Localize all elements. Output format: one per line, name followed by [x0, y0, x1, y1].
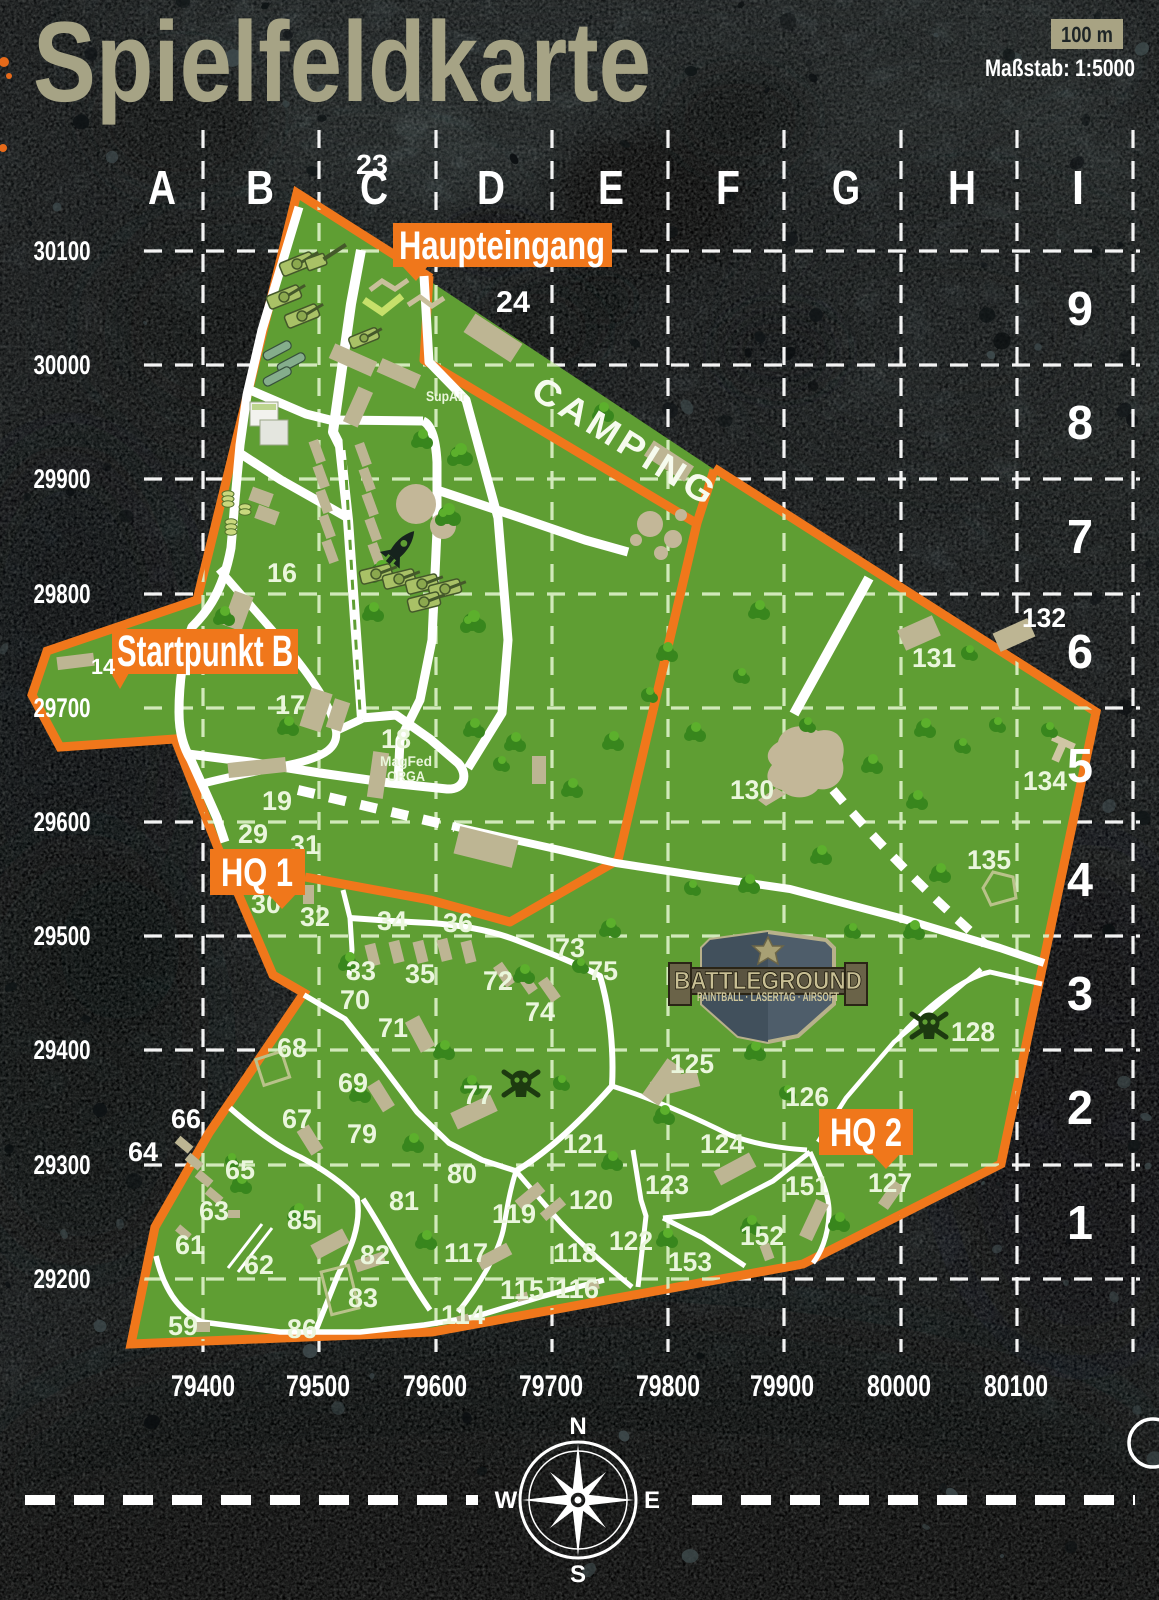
svg-text:61: 61 [175, 1230, 205, 1260]
svg-text:79600: 79600 [403, 1370, 467, 1403]
svg-text:69: 69 [338, 1068, 368, 1098]
svg-text:1: 1 [1067, 1197, 1093, 1250]
svg-text:W: W [495, 1487, 518, 1514]
svg-text:36: 36 [443, 908, 473, 938]
svg-text:114: 114 [441, 1300, 485, 1330]
svg-text:C: C [360, 162, 388, 215]
svg-text:68: 68 [277, 1033, 307, 1063]
svg-text:18: 18 [381, 724, 411, 754]
svg-text:83: 83 [348, 1283, 378, 1313]
svg-text:80000: 80000 [867, 1370, 931, 1403]
svg-text:29800: 29800 [34, 579, 91, 609]
svg-text:SupAir: SupAir [426, 388, 466, 404]
svg-text:77: 77 [463, 1080, 493, 1110]
svg-text:79400: 79400 [171, 1370, 235, 1403]
svg-text:132: 132 [1022, 603, 1066, 633]
svg-text:Spielfeldkarte: Spielfeldkarte [33, 0, 651, 126]
svg-text:29600: 29600 [34, 807, 91, 837]
svg-text:Startpunkt B: Startpunkt B [117, 627, 293, 676]
svg-text:2: 2 [1067, 1082, 1093, 1135]
svg-text:5: 5 [1067, 740, 1093, 793]
svg-text:F: F [716, 162, 740, 215]
svg-text:134: 134 [1023, 766, 1067, 796]
svg-text:H: H [948, 162, 976, 215]
svg-text:B: B [246, 162, 274, 215]
svg-text:73: 73 [555, 933, 585, 963]
svg-text:N: N [569, 1413, 586, 1440]
svg-text:A: A [148, 162, 176, 215]
svg-text:I: I [1072, 162, 1084, 215]
svg-text:29400: 29400 [34, 1035, 91, 1065]
svg-text:19: 19 [262, 786, 292, 816]
svg-text:151: 151 [785, 1171, 829, 1201]
svg-text:115: 115 [500, 1275, 544, 1305]
svg-text:153: 153 [668, 1247, 712, 1277]
svg-text:121: 121 [563, 1129, 607, 1159]
svg-text:30000: 30000 [34, 350, 91, 380]
svg-text:152: 152 [740, 1221, 784, 1251]
svg-text:8: 8 [1067, 397, 1093, 450]
svg-text:79700: 79700 [519, 1370, 583, 1403]
svg-text:29900: 29900 [34, 464, 91, 494]
svg-text:80100: 80100 [984, 1370, 1048, 1403]
svg-text:119: 119 [492, 1199, 536, 1229]
svg-text:135: 135 [967, 845, 1011, 875]
svg-text:62: 62 [244, 1250, 274, 1280]
svg-text:33: 33 [346, 956, 376, 986]
svg-text:7: 7 [1067, 511, 1093, 564]
svg-text:Haupteingang: Haupteingang [399, 224, 605, 268]
svg-text:122: 122 [609, 1226, 653, 1256]
svg-text:64: 64 [128, 1137, 158, 1167]
svg-text:D: D [477, 162, 505, 215]
svg-text:6: 6 [1067, 626, 1093, 679]
svg-text:82: 82 [360, 1240, 390, 1270]
svg-text:128: 128 [951, 1017, 995, 1047]
svg-text:PAINTBALL · LASERTAG · AIRSOFT: PAINTBALL · LASERTAG · AIRSOFT [697, 990, 839, 1004]
svg-text:71: 71 [378, 1013, 408, 1043]
svg-text:81: 81 [389, 1186, 419, 1216]
svg-text:79800: 79800 [636, 1370, 700, 1403]
svg-text:124: 124 [700, 1129, 744, 1159]
svg-text:85: 85 [287, 1205, 317, 1235]
svg-text:24: 24 [496, 286, 530, 319]
svg-text:35: 35 [405, 959, 435, 989]
svg-text:S: S [570, 1561, 586, 1588]
svg-text:29300: 29300 [34, 1150, 91, 1180]
svg-text:29700: 29700 [34, 693, 91, 723]
svg-text:65: 65 [225, 1155, 255, 1185]
svg-text:17: 17 [275, 690, 305, 720]
svg-text:32: 32 [300, 902, 330, 932]
svg-text:70: 70 [340, 985, 370, 1015]
svg-text:131: 131 [912, 643, 956, 673]
svg-text:130: 130 [730, 775, 774, 805]
svg-text:4: 4 [1067, 854, 1093, 907]
svg-text:79: 79 [347, 1119, 377, 1149]
svg-text:34: 34 [377, 906, 407, 936]
svg-text:14: 14 [91, 654, 116, 679]
svg-text:29500: 29500 [34, 921, 91, 951]
svg-text:86: 86 [287, 1314, 317, 1344]
svg-text:116: 116 [555, 1274, 599, 1304]
svg-text:75: 75 [588, 956, 618, 986]
svg-text:118: 118 [553, 1238, 597, 1268]
svg-text:16: 16 [267, 558, 297, 588]
svg-text:E: E [644, 1487, 660, 1514]
svg-text:G: G [832, 162, 860, 215]
svg-text:67: 67 [282, 1104, 312, 1134]
svg-text:MagFed: MagFed [380, 753, 432, 769]
svg-text:100 m: 100 m [1061, 22, 1113, 47]
svg-text:79500: 79500 [286, 1370, 350, 1403]
svg-text:72: 72 [483, 966, 513, 996]
svg-text:HQ 1: HQ 1 [221, 851, 293, 895]
svg-text:123: 123 [645, 1170, 689, 1200]
svg-text:74: 74 [525, 997, 555, 1027]
svg-text:80: 80 [447, 1159, 477, 1189]
svg-text:66: 66 [171, 1104, 201, 1134]
svg-text:29200: 29200 [34, 1264, 91, 1294]
svg-text:ORGA: ORGA [387, 768, 425, 784]
svg-text:127: 127 [868, 1168, 912, 1198]
svg-text:E: E [598, 162, 624, 215]
svg-text:79900: 79900 [750, 1370, 814, 1403]
svg-text:120: 120 [569, 1185, 613, 1215]
svg-text:HQ 2: HQ 2 [830, 1111, 902, 1155]
svg-text:29: 29 [238, 819, 268, 849]
svg-text:126: 126 [785, 1082, 829, 1112]
svg-text:125: 125 [670, 1049, 714, 1079]
svg-text:117: 117 [444, 1238, 488, 1268]
svg-text:3: 3 [1067, 968, 1093, 1021]
svg-text:30100: 30100 [34, 236, 91, 266]
svg-text:59: 59 [168, 1311, 198, 1341]
svg-text:Maßstab: 1:5000: Maßstab: 1:5000 [985, 55, 1135, 82]
svg-text:9: 9 [1067, 283, 1093, 336]
svg-text:63: 63 [199, 1196, 229, 1226]
